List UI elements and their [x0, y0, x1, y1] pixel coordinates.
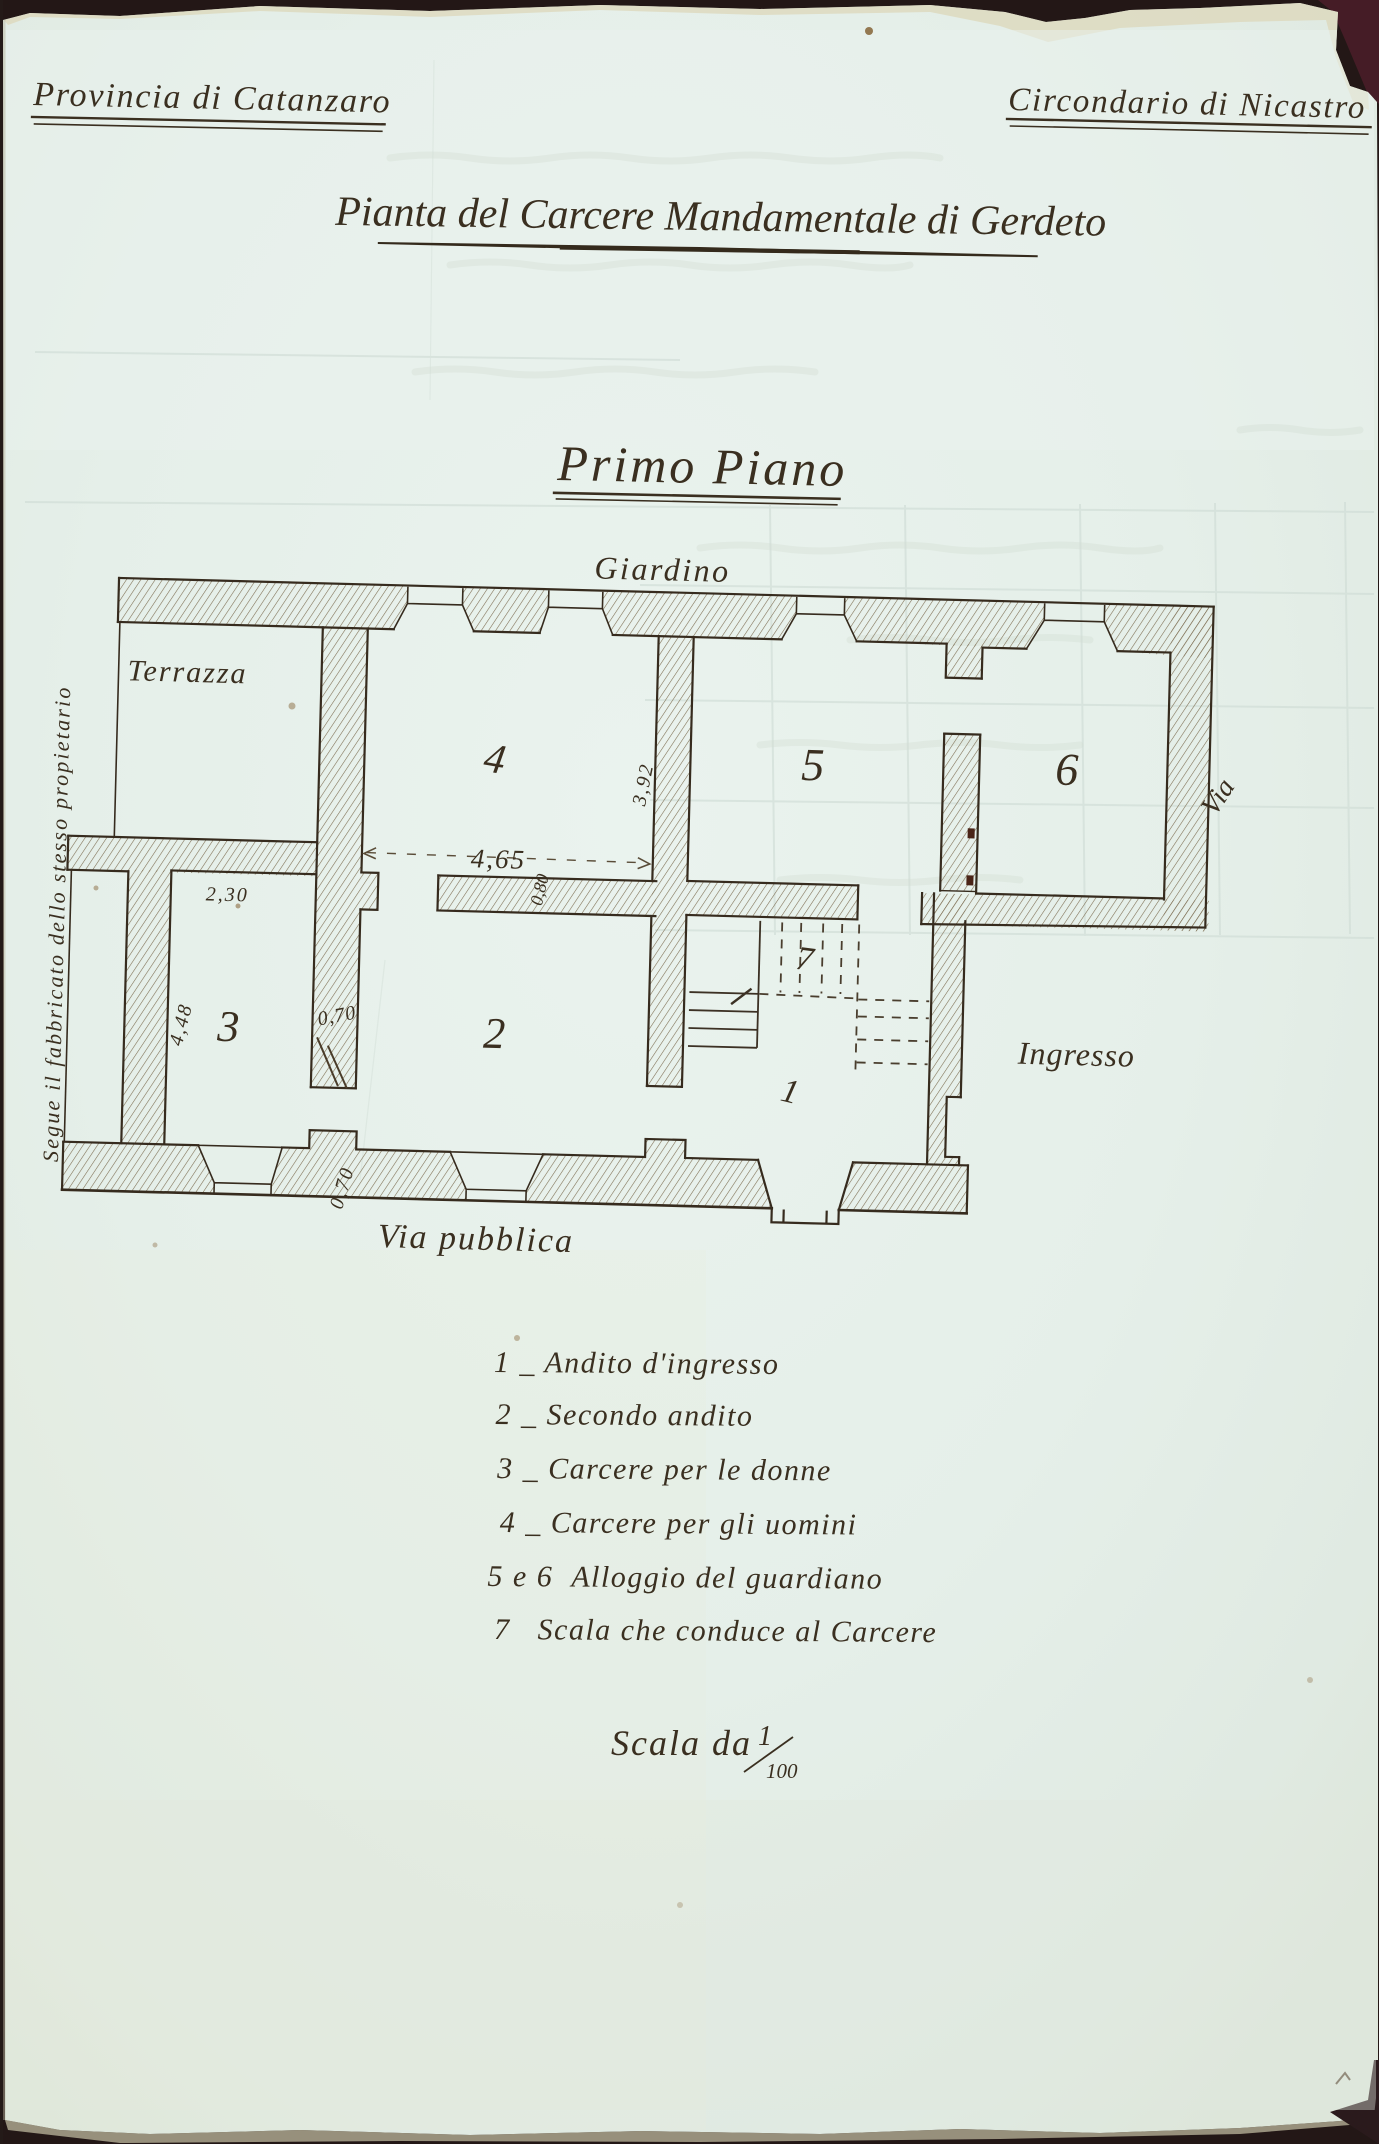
svg-text:2: 2	[483, 1009, 506, 1059]
svg-text:Ingresso: Ingresso	[1016, 1035, 1135, 1074]
svg-text:Giardino: Giardino	[594, 549, 731, 589]
svg-text:Primo Piano: Primo Piano	[556, 435, 848, 497]
svg-text:2,30: 2,30	[206, 883, 250, 906]
svg-text:1: 1	[758, 1721, 772, 1752]
svg-text:4 _ Carcere per gli uomini: 4 _ Carcere per gli uomini	[500, 1506, 858, 1541]
svg-text:5: 5	[801, 739, 825, 791]
svg-text:3: 3	[216, 1002, 240, 1052]
svg-text:100: 100	[766, 1759, 798, 1783]
svg-text:4,65: 4,65	[470, 843, 526, 874]
svg-text:Via pubblica: Via pubblica	[377, 1218, 574, 1260]
svg-text:Terrazza: Terrazza	[127, 654, 248, 690]
svg-text:Provincia di Catanzaro: Provincia di Catanzaro	[32, 76, 392, 121]
svg-text:Scala da: Scala da	[611, 1723, 752, 1763]
svg-text:2 _ Secondo andito: 2 _ Secondo andito	[495, 1398, 753, 1433]
svg-text:6: 6	[1055, 744, 1079, 796]
svg-text:5 e 6 Alloggio del guardiano: 5 e 6 Alloggio del guardiano	[487, 1560, 883, 1596]
svg-text:3 _ Carcere per le donne: 3 _ Carcere per le donne	[496, 1452, 832, 1487]
svg-text:1 _ Andito d'ingresso: 1 _ Andito d'ingresso	[494, 1346, 780, 1381]
svg-text:7 Scala che conduce al Carce: 7 Scala che conduce al Carcere	[494, 1613, 937, 1649]
